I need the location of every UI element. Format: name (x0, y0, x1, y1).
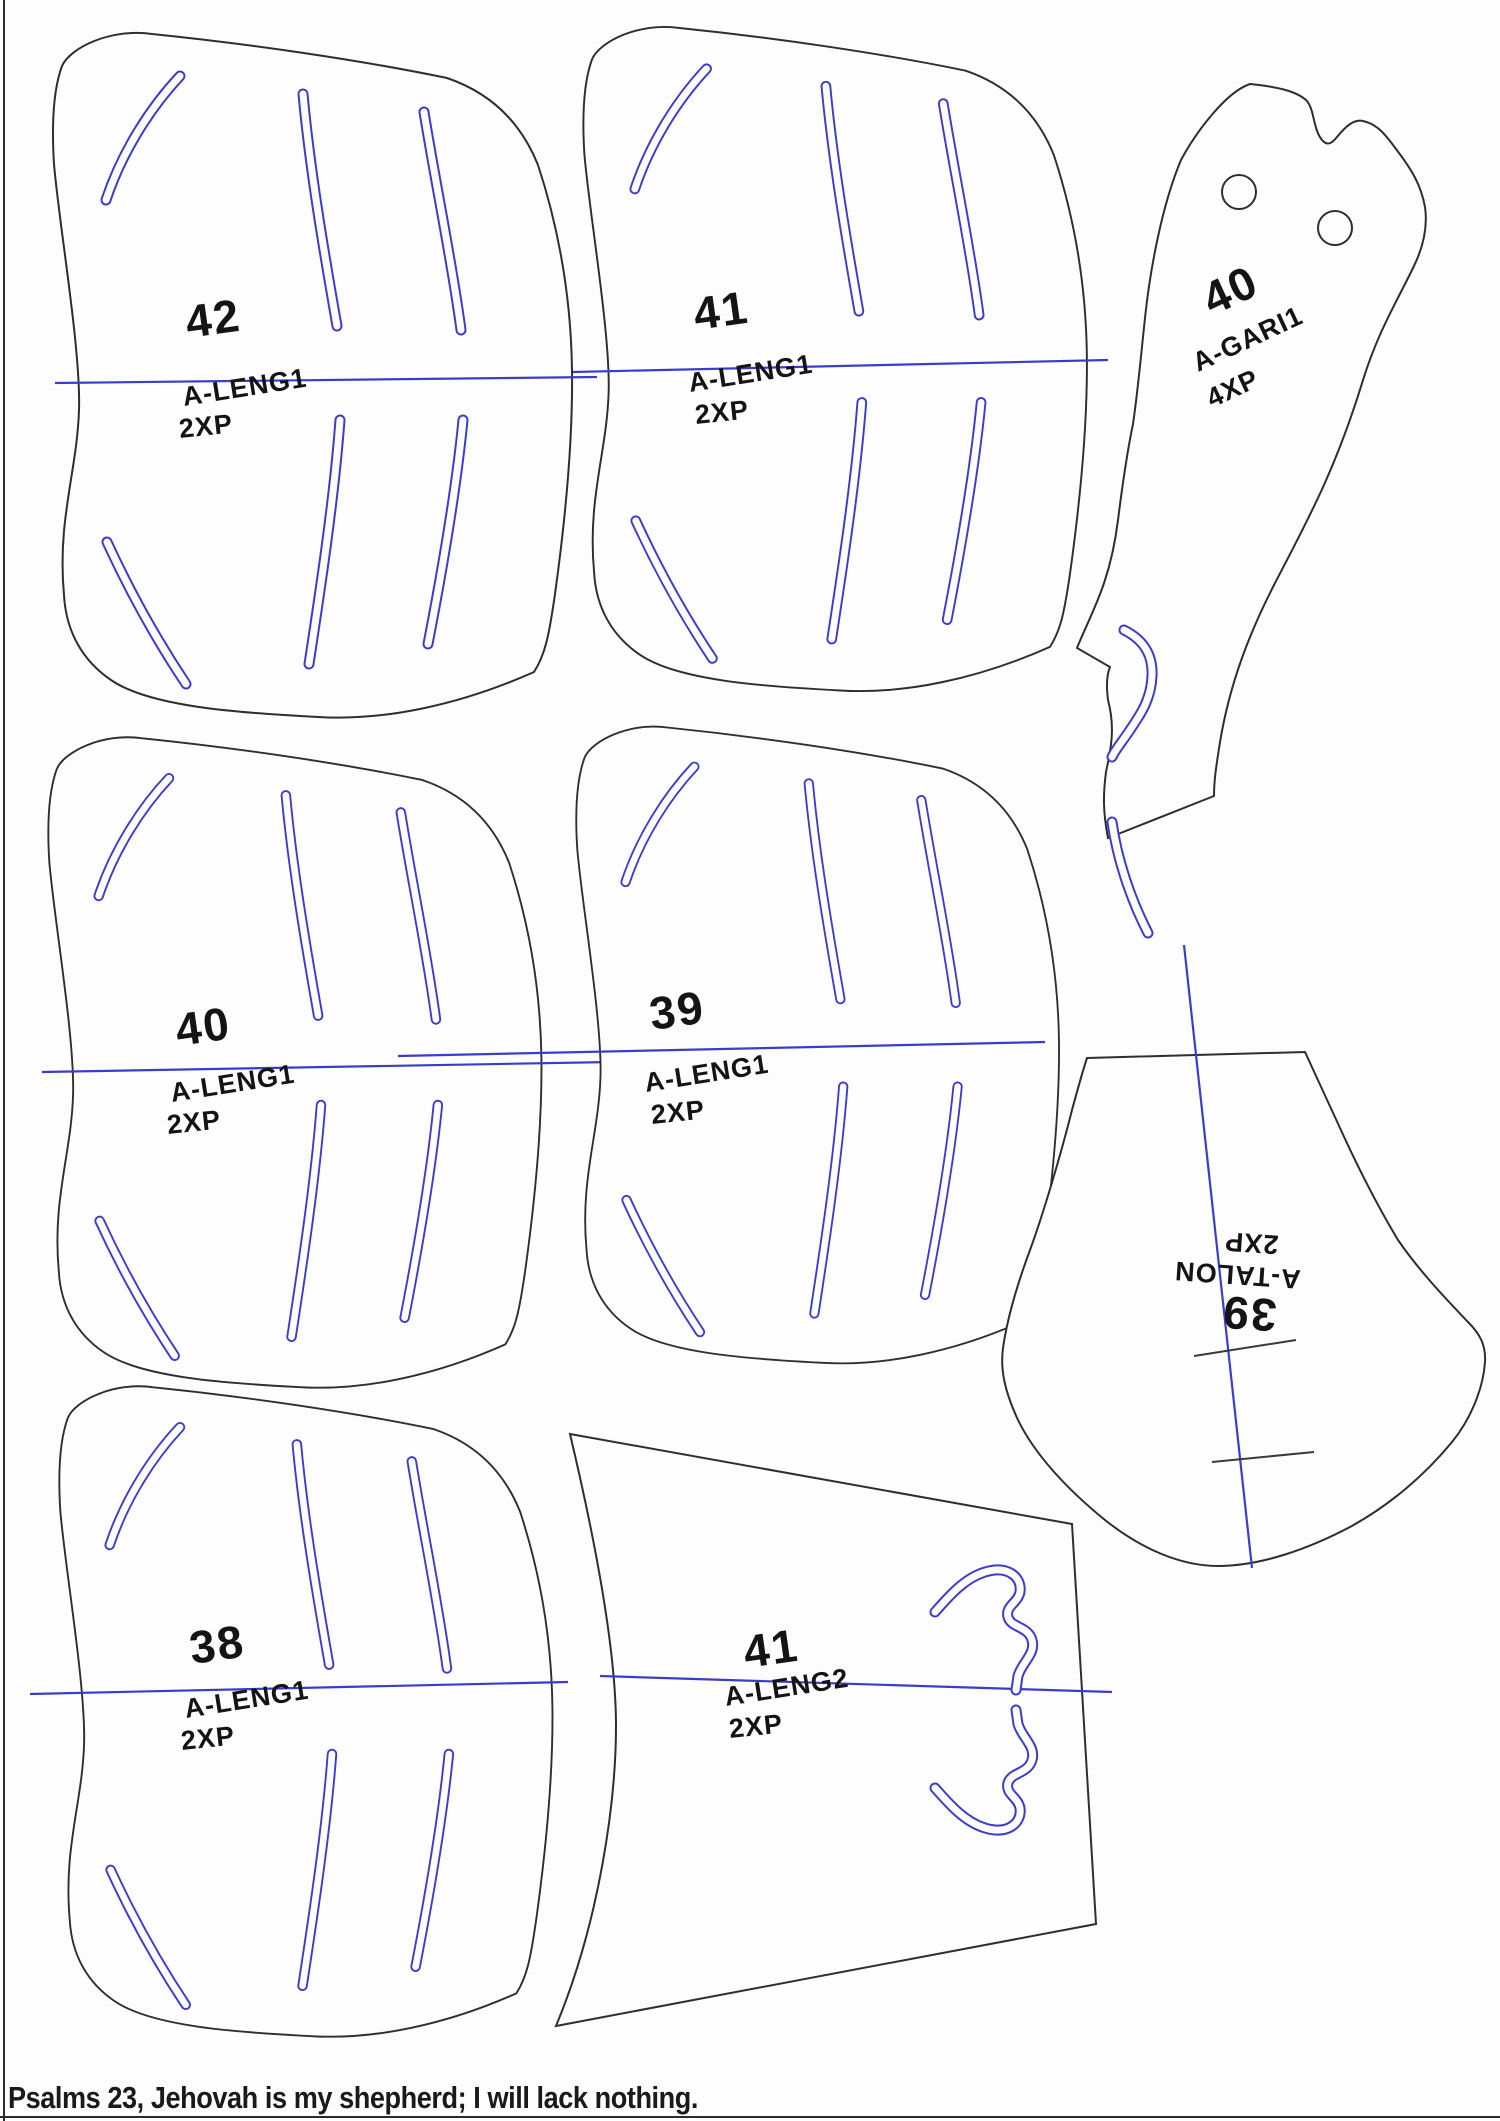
punch-hole (1222, 175, 1256, 209)
pattern-sheet: 42 A-LENG1 2XP 41 A-LENG1 2XP 40 A-GARI1… (0, 0, 1500, 2121)
piece-39-a-talon: 39 A-TALON 2XP (1002, 945, 1485, 1568)
piece-size: 39 (1220, 1286, 1279, 1342)
piece-qty: 2XP (179, 1720, 236, 1755)
piece-qty: 2XP (1223, 1226, 1279, 1260)
piece-size: 39 (646, 981, 708, 1040)
piece-42-a-leng1: 42 A-LENG1 2XP (53, 33, 597, 718)
piece-38-a-leng1: 38 A-LENG1 2XP (30, 1386, 568, 2036)
piece-size: 41 (740, 1619, 802, 1678)
piece-qty: 2XP (165, 1104, 222, 1139)
piece-qty: 2XP (693, 394, 750, 429)
piece-41-a-leng1: 41 A-LENG1 2XP (573, 27, 1108, 691)
piece-qty: 2XP (727, 1708, 784, 1743)
pattern-canvas: 42 A-LENG1 2XP 41 A-LENG1 2XP 40 A-GARI1… (0, 0, 1500, 2121)
piece-41-a-leng2: 41 A-LENG2 2XP (556, 1434, 1112, 2026)
punch-hole (1318, 211, 1352, 245)
footer-verse: Psalms 23, Jehovah is my shepherd; I wil… (8, 2080, 698, 2115)
piece-size: 38 (186, 1615, 248, 1674)
piece-size: 40 (172, 997, 234, 1056)
piece-qty: 2XP (649, 1094, 706, 1129)
piece-size: 41 (690, 281, 752, 340)
piece-qty: 2XP (177, 408, 234, 443)
piece-40-a-leng1: 40 A-LENG1 2XP (42, 737, 612, 1387)
piece-size: 42 (182, 289, 244, 348)
piece-40-a-gari1: 40 A-GARI1 4XP (1077, 84, 1426, 933)
